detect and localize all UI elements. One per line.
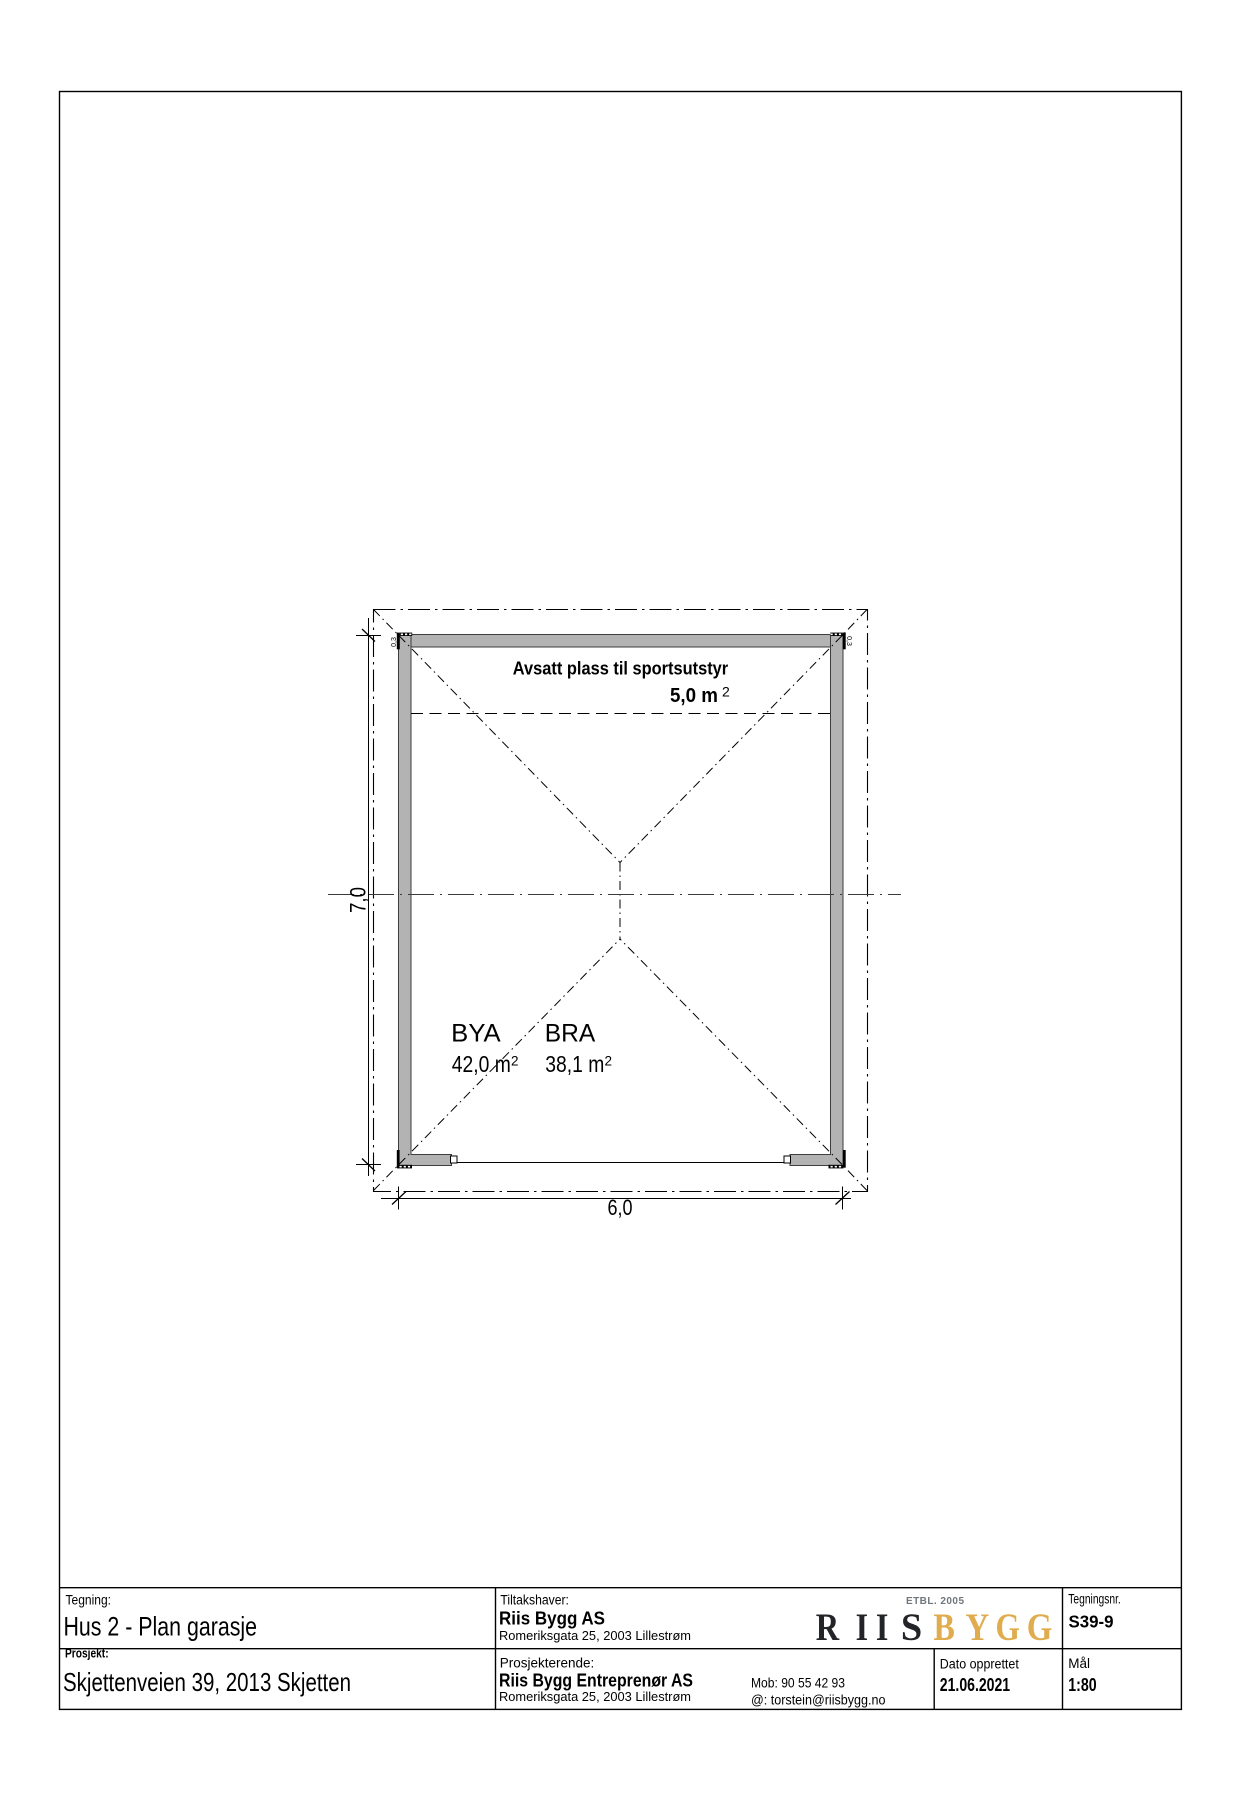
svg-text:Tegningsnr.: Tegningsnr. bbox=[1068, 1591, 1121, 1606]
svg-text:Hus 2 - Plan garasje: Hus 2 - Plan garasje bbox=[64, 1611, 258, 1641]
svg-text:Mål: Mål bbox=[1068, 1656, 1090, 1671]
svg-text:Dato opprettet: Dato opprettet bbox=[940, 1656, 1019, 1671]
svg-text:S: S bbox=[901, 1605, 922, 1649]
svg-text:Avsatt plass til sportsutstyr: Avsatt plass til sportsutstyr bbox=[513, 659, 728, 679]
svg-text:Mob: 90 55 42 93: Mob: 90 55 42 93 bbox=[751, 1675, 845, 1690]
svg-text:@: torstein@riisbygg.no: @: torstein@riisbygg.no bbox=[751, 1693, 886, 1708]
svg-text:Romeriksgata 25, 2003 Lillestr: Romeriksgata 25, 2003 Lillestrøm bbox=[499, 1628, 691, 1643]
svg-text:Prosjekt:: Prosjekt: bbox=[65, 1647, 109, 1661]
svg-text:G: G bbox=[1027, 1605, 1053, 1649]
svg-text:BYA: BYA bbox=[451, 1019, 501, 1047]
svg-text:Romeriksgata 25, 2003 Lillestr: Romeriksgata 25, 2003 Lillestrøm bbox=[499, 1689, 691, 1704]
svg-text:Tiltakshaver:: Tiltakshaver: bbox=[500, 1592, 569, 1607]
svg-text:38,1 m: 38,1 m bbox=[545, 1051, 604, 1077]
svg-text:I: I bbox=[856, 1605, 868, 1649]
svg-text:I: I bbox=[876, 1605, 888, 1649]
svg-text:Riis Bygg AS: Riis Bygg AS bbox=[499, 1609, 605, 1629]
svg-text:2: 2 bbox=[722, 684, 730, 700]
svg-text:B: B bbox=[934, 1605, 955, 1649]
svg-text:Riis Bygg Entreprenør AS: Riis Bygg Entreprenør AS bbox=[499, 1670, 693, 1691]
svg-text:42,0 m: 42,0 m bbox=[452, 1051, 511, 1077]
svg-text:2: 2 bbox=[605, 1053, 613, 1068]
svg-text:5,0 m: 5,0 m bbox=[670, 685, 718, 707]
svg-text:Tegning:: Tegning: bbox=[66, 1593, 112, 1608]
svg-text:1:80: 1:80 bbox=[1068, 1675, 1096, 1695]
svg-text:0,3: 0,3 bbox=[845, 636, 852, 646]
svg-text:Y: Y bbox=[966, 1605, 990, 1649]
svg-text:Skjettenveien 39, 2013 Skjette: Skjettenveien 39, 2013 Skjetten bbox=[63, 1667, 351, 1697]
svg-text:S39-9: S39-9 bbox=[1069, 1612, 1114, 1632]
svg-text:2: 2 bbox=[511, 1053, 519, 1068]
svg-text:21.06.2021: 21.06.2021 bbox=[940, 1675, 1010, 1695]
svg-text:R: R bbox=[816, 1605, 840, 1649]
svg-text:6,0: 6,0 bbox=[608, 1195, 633, 1220]
svg-text:Prosjekterende:: Prosjekterende: bbox=[500, 1655, 595, 1670]
svg-text:G: G bbox=[996, 1604, 1020, 1648]
svg-text:0,3: 0,3 bbox=[391, 637, 398, 647]
svg-text:7,0: 7,0 bbox=[346, 887, 371, 913]
svg-text:BRA: BRA bbox=[545, 1019, 596, 1047]
